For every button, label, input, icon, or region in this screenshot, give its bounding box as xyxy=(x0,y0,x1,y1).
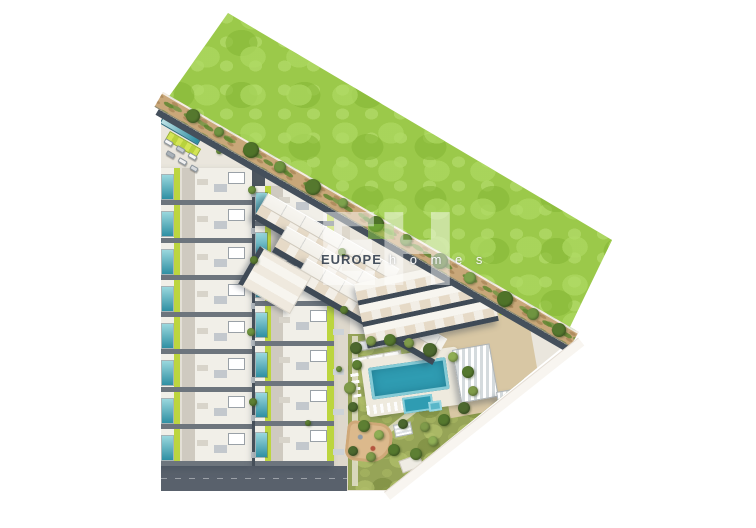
bottom-road xyxy=(161,466,347,491)
townhouse-row xyxy=(255,346,334,386)
townhouse-row xyxy=(255,386,334,426)
townhouse-row xyxy=(161,429,252,466)
kids-pool xyxy=(428,400,442,412)
townhouse-row xyxy=(255,306,334,346)
townhouse-row xyxy=(161,392,252,429)
aerial-site-plan-render: EH EUROPEh o m e s xyxy=(0,0,756,528)
townhouse-row xyxy=(161,317,252,354)
residential-development xyxy=(0,0,756,528)
townhouse-row xyxy=(161,354,252,391)
townhouse-row xyxy=(161,168,252,205)
townhouse-row xyxy=(161,205,252,242)
townhouse-column-left xyxy=(161,168,252,466)
townhouse-row xyxy=(161,280,252,317)
townhouse-row xyxy=(255,426,334,466)
townhouse-row xyxy=(161,243,252,280)
